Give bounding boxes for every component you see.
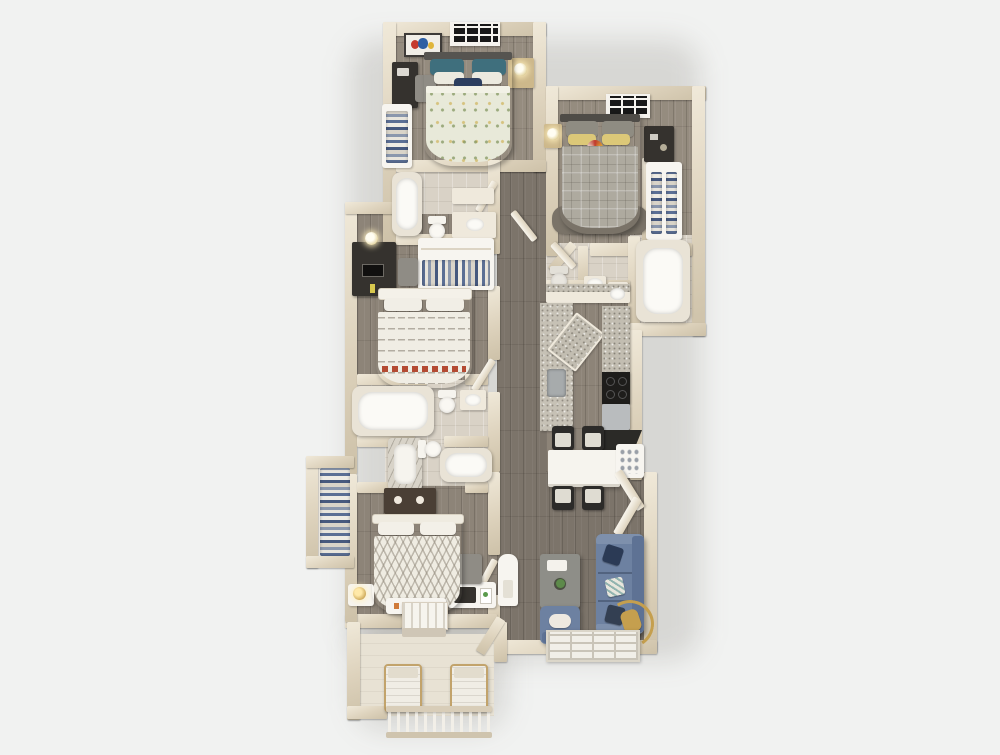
tub-basin [643, 248, 683, 314]
duvet [562, 146, 638, 228]
desk-item [660, 144, 667, 151]
wall [306, 456, 354, 468]
desk-accent [370, 284, 375, 293]
hanging-clothes [422, 260, 490, 286]
desk-papers [397, 68, 409, 76]
lounge-chair [384, 664, 422, 712]
door-threshold [402, 628, 446, 637]
bath-shelf [452, 188, 494, 204]
wall [306, 456, 318, 568]
desk-item [480, 588, 492, 604]
vanity [452, 212, 496, 238]
closet-shelving [418, 238, 494, 290]
lounge-headrest [454, 668, 484, 678]
range [602, 372, 630, 404]
art-yellow-blob [428, 42, 434, 49]
desk-chair [398, 258, 418, 286]
kitchen-counter-right [602, 306, 630, 372]
tray [547, 560, 567, 571]
railing-balusters [388, 711, 490, 733]
front-door [402, 602, 448, 630]
wall [488, 286, 500, 360]
gold-lamp [353, 587, 366, 600]
tub-basin [445, 453, 487, 477]
kitchen-counter-top [546, 284, 630, 303]
bed-striped [376, 288, 472, 388]
hanging-clothes [386, 111, 408, 163]
dresser [384, 488, 436, 514]
plant [556, 579, 565, 588]
closet-hanging-clothes [320, 468, 350, 556]
desk [644, 126, 674, 162]
coffee-table [540, 554, 580, 608]
duvet [378, 312, 470, 384]
toilet-bowl [439, 397, 455, 413]
railing-bottom [386, 732, 492, 738]
vanity [460, 390, 486, 410]
closet [646, 162, 682, 240]
dining-chair [582, 486, 604, 510]
green-dot [483, 592, 488, 597]
sink [465, 394, 481, 406]
kitchen-sink-bowl [610, 288, 625, 300]
toilet [428, 216, 446, 240]
dresser-item [394, 496, 402, 504]
duvet-red-band [382, 366, 466, 372]
wall [692, 86, 705, 336]
burner [606, 377, 615, 386]
wall [347, 706, 387, 719]
tub-basin [358, 392, 428, 430]
pillow-teal-pattern [604, 576, 625, 597]
railing-top [386, 706, 492, 712]
sink [466, 218, 484, 231]
lamp [514, 63, 527, 76]
panel-inset [503, 580, 513, 598]
hanging-clothes [666, 172, 677, 234]
lamp [365, 232, 378, 245]
dining-chair [552, 486, 574, 510]
garden-tub [636, 240, 690, 322]
shower-basin [394, 444, 416, 484]
utility-closet-panel [498, 554, 518, 606]
wall [306, 556, 354, 568]
hanging-clothes [651, 172, 662, 234]
chair-cushion [585, 489, 601, 503]
lounge-chair [450, 664, 488, 712]
closet [382, 104, 412, 168]
duvet-fold [426, 86, 510, 93]
bathtub [352, 386, 434, 436]
pillow-yellow [602, 134, 630, 145]
bedroom1-window [450, 22, 500, 46]
apartment-floorplan [0, 0, 1000, 755]
pillow-white [384, 298, 422, 311]
white-blanket [549, 614, 571, 628]
lounge-headrest [388, 668, 418, 678]
floorplan-canvas [0, 0, 1000, 755]
burner [618, 390, 627, 399]
shelf-line [421, 248, 491, 250]
toilet-bowl [429, 223, 445, 239]
wall [444, 614, 497, 628]
bed-plaid [560, 114, 640, 234]
balcony-railing [386, 706, 492, 738]
pillow-white [420, 522, 456, 535]
wall [488, 472, 500, 555]
bathtub [392, 172, 422, 236]
wall [465, 482, 488, 493]
dining-chair [582, 426, 604, 450]
desk-item [650, 134, 658, 140]
burner [618, 377, 627, 386]
dishwasher [602, 404, 630, 430]
toilet [438, 390, 456, 414]
wall [533, 22, 546, 172]
toilet-bowl [425, 441, 441, 457]
marble-shower [388, 438, 422, 490]
monitor [362, 264, 384, 277]
chair-cushion [555, 433, 571, 447]
dresser-item [416, 496, 424, 504]
chair-cushion [555, 489, 571, 503]
burner [606, 390, 615, 399]
chair-cushion [585, 433, 601, 447]
lamp [547, 128, 559, 140]
pillow-white [378, 522, 414, 535]
bed-sage [424, 52, 512, 166]
bathtub-small [440, 448, 492, 482]
dining-chair [552, 426, 574, 450]
kitchen-sink [547, 369, 566, 397]
pillow-white [426, 298, 464, 311]
living-window [546, 630, 640, 662]
cushion-seam [598, 572, 632, 574]
toilet [418, 440, 442, 458]
tub-basin [396, 178, 418, 230]
wall [444, 436, 488, 447]
pillow-navy [602, 544, 625, 567]
duvet [426, 86, 510, 162]
art-blue-blob [418, 38, 428, 49]
dining-table [548, 450, 620, 487]
